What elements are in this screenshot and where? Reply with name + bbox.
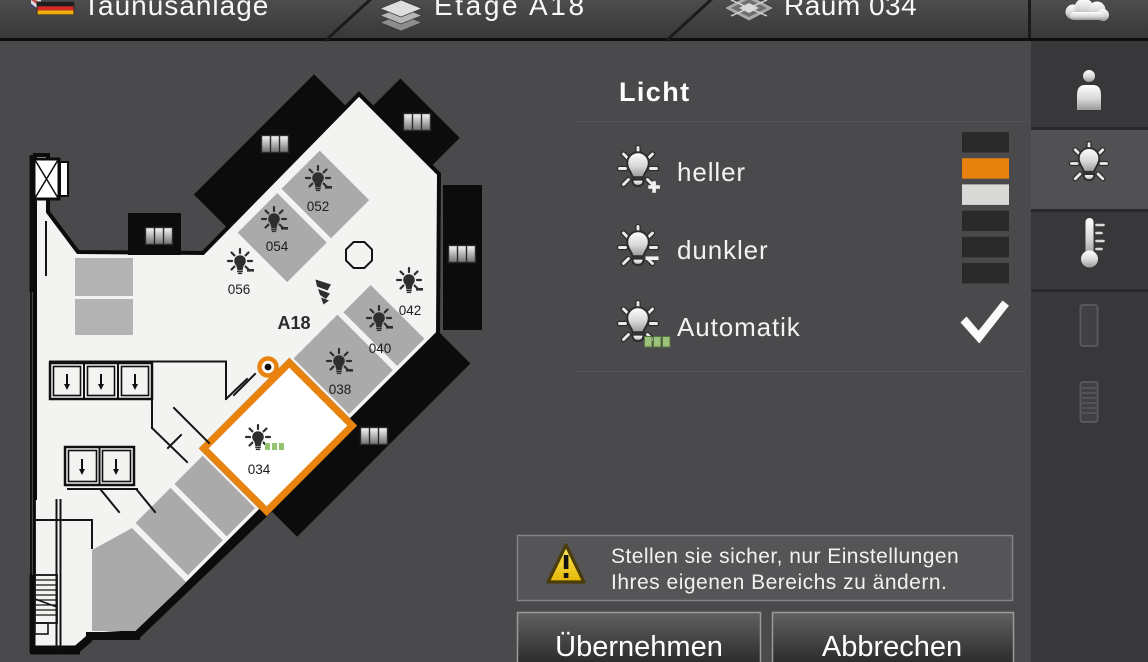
svg-text:Übernehmen: Übernehmen bbox=[555, 631, 723, 662]
svg-text:Ihres eigenen Bereichs zu ände: Ihres eigenen Bereichs zu ändern. bbox=[611, 571, 947, 594]
svg-text:040: 040 bbox=[369, 341, 392, 356]
svg-text:042: 042 bbox=[399, 303, 422, 318]
svg-text:056: 056 bbox=[228, 282, 251, 297]
svg-text:034: 034 bbox=[248, 462, 271, 477]
svg-text:054: 054 bbox=[266, 239, 289, 254]
svg-text:Stellen sie sicher, nur Einste: Stellen sie sicher, nur Einstellungen bbox=[611, 545, 959, 568]
svg-text:dunkler: dunkler bbox=[677, 235, 769, 265]
svg-text:Etage A18: Etage A18 bbox=[434, 0, 587, 21]
svg-text:052: 052 bbox=[307, 199, 330, 214]
svg-text:heller: heller bbox=[677, 157, 746, 187]
svg-text:Raum 034: Raum 034 bbox=[784, 0, 917, 21]
svg-text:Automatik: Automatik bbox=[677, 312, 801, 342]
svg-text:Taunusanlage: Taunusanlage bbox=[83, 0, 269, 21]
svg-text:Abbrechen: Abbrechen bbox=[822, 631, 962, 662]
svg-text:038: 038 bbox=[329, 382, 352, 397]
svg-text:A18: A18 bbox=[277, 313, 310, 333]
svg-text:Licht: Licht bbox=[619, 77, 691, 107]
